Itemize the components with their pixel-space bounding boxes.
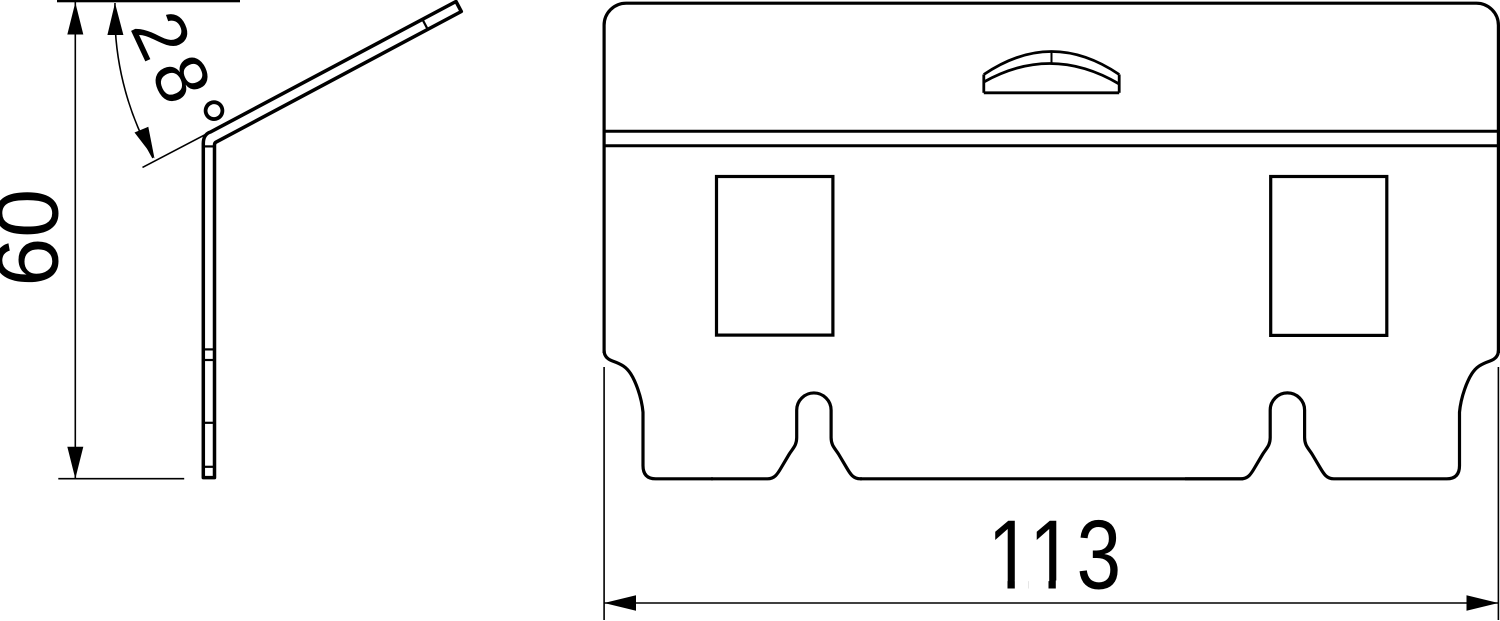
svg-text:60: 60 xyxy=(0,189,77,287)
svg-text:113: 113 xyxy=(987,500,1123,609)
